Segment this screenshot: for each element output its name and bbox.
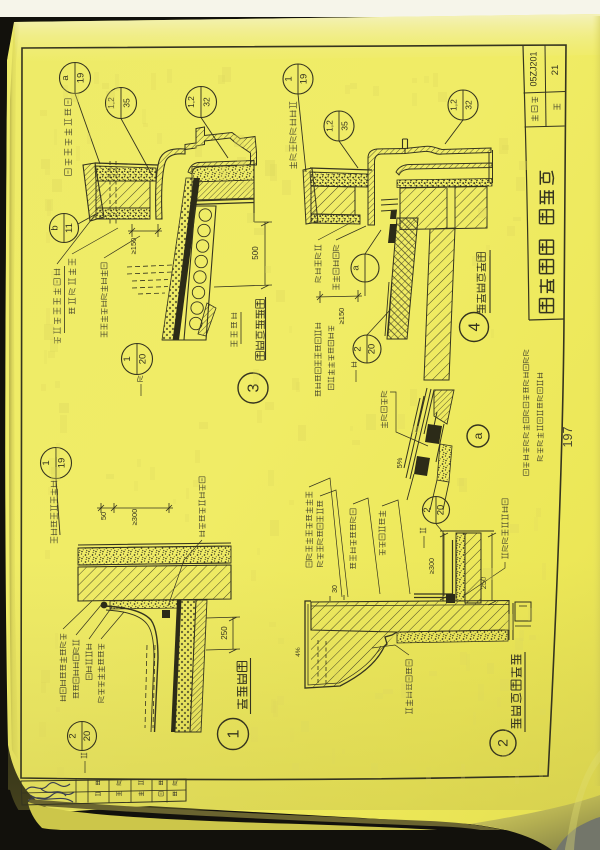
svg-text:1,2: 1,2 [448, 99, 458, 111]
svg-text:≥300: ≥300 [427, 558, 436, 574]
svg-text:197: 197 [561, 427, 575, 448]
svg-text:250: 250 [220, 626, 229, 640]
svg-text:32: 32 [202, 97, 212, 107]
svg-text:5%: 5% [395, 457, 404, 468]
svg-text:500: 500 [251, 246, 260, 260]
svg-text:30: 30 [332, 585, 339, 593]
svg-text:20: 20 [367, 344, 378, 355]
svg-text:a: a [60, 75, 71, 81]
svg-text:4: 4 [466, 322, 483, 331]
svg-text:05ZJ201: 05ZJ201 [529, 51, 539, 86]
svg-text:19: 19 [76, 73, 87, 84]
svg-text:21: 21 [550, 65, 561, 76]
svg-text:≥150: ≥150 [337, 308, 346, 325]
svg-text:2: 2 [67, 733, 78, 738]
svg-text:1: 1 [225, 729, 242, 738]
svg-text:32: 32 [463, 100, 473, 110]
svg-text:35: 35 [122, 98, 132, 108]
svg-text:1,2: 1,2 [186, 96, 196, 108]
svg-text:a: a [471, 432, 485, 439]
svg-text:20: 20 [138, 354, 149, 365]
svg-text:20: 20 [435, 505, 446, 516]
svg-text:a: a [351, 265, 362, 271]
svg-text:1: 1 [283, 76, 294, 81]
svg-text:1,2: 1,2 [324, 120, 334, 132]
svg-text:4%: 4% [295, 647, 302, 657]
svg-text:50: 50 [99, 512, 108, 520]
svg-text:19: 19 [298, 74, 309, 85]
svg-text:2: 2 [422, 507, 433, 512]
svg-text:11: 11 [64, 223, 75, 233]
svg-text:b: b [49, 225, 60, 230]
svg-text:1: 1 [122, 356, 133, 361]
svg-text:2: 2 [353, 346, 364, 351]
svg-text:19: 19 [57, 458, 68, 469]
svg-text:≥300: ≥300 [130, 509, 139, 526]
svg-text:20: 20 [82, 731, 93, 742]
svg-text:35: 35 [339, 121, 349, 131]
svg-text:2: 2 [495, 739, 511, 747]
